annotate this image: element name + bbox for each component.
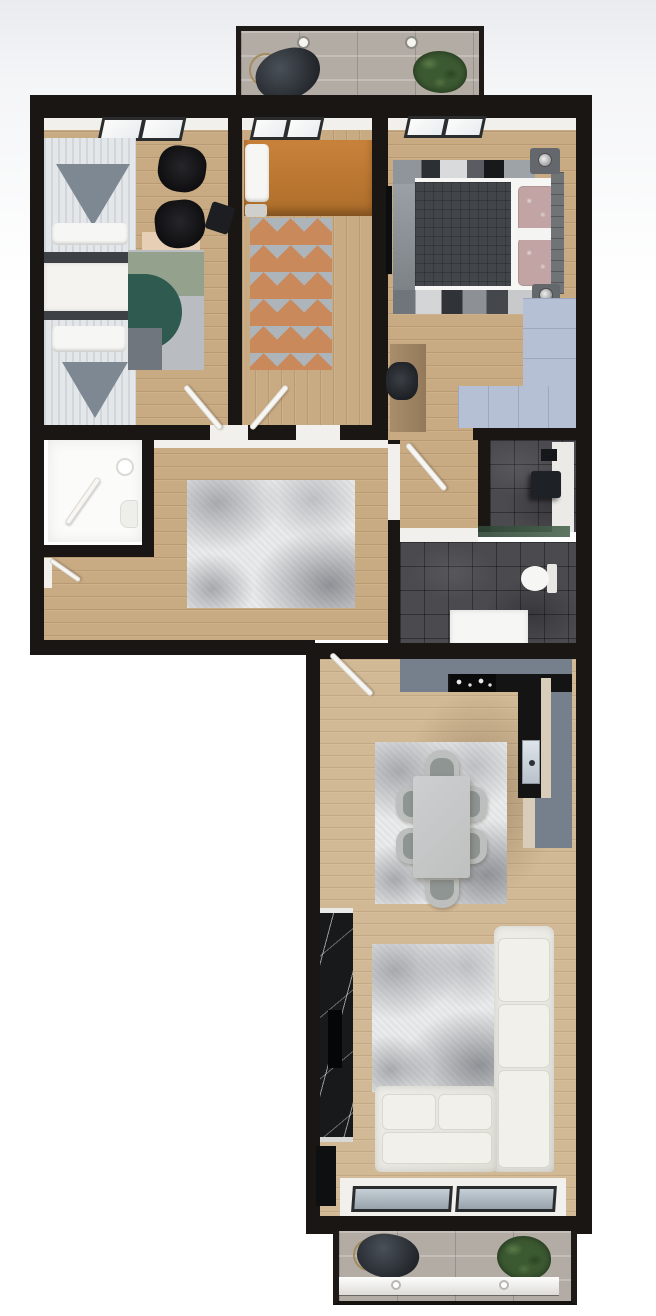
- cabinet-face: [541, 678, 551, 798]
- pillow: [518, 186, 554, 234]
- floor-plan: [0, 0, 656, 1316]
- wall-top: [30, 95, 592, 118]
- hanging-chair: [353, 1228, 423, 1284]
- plant: [413, 51, 467, 93]
- cooktop: [450, 674, 496, 692]
- dining-chair: [425, 876, 459, 908]
- tv-wall-base: [316, 1146, 336, 1206]
- wall-shower-left: [478, 440, 490, 532]
- area-rug: [128, 250, 204, 370]
- wall-bedroom2-3: [372, 118, 388, 440]
- rail-light: [391, 1280, 401, 1290]
- railing: [339, 1277, 559, 1295]
- ceiling-light-icon: [405, 36, 418, 49]
- wall-bathroom-small-right: [142, 440, 154, 545]
- pillow: [52, 223, 128, 245]
- sofa-cushion: [498, 938, 550, 1002]
- pillow: [245, 144, 269, 202]
- bed-header: [44, 311, 136, 320]
- shower-valve: [541, 449, 557, 461]
- cabinet-face: [523, 798, 535, 848]
- sofa-cushion: [438, 1094, 492, 1130]
- pillow: [52, 326, 126, 352]
- panorama-window: [455, 1186, 557, 1212]
- vanity: [450, 610, 528, 646]
- patchwork-rug: [393, 290, 535, 314]
- dining-table: [413, 776, 470, 878]
- wall-right: [576, 95, 592, 1233]
- kitchen-sink: [522, 740, 540, 784]
- wall-hall-bottom: [30, 640, 315, 655]
- rug-gray-block: [128, 328, 162, 370]
- kitchen-peninsula: [535, 798, 572, 848]
- geometric-rug: [250, 218, 332, 370]
- sofa-cushion: [498, 1004, 550, 1068]
- balcony-bottom: [333, 1231, 577, 1305]
- window: [250, 117, 325, 140]
- rail-light: [499, 1280, 509, 1290]
- shower-head: [531, 471, 561, 498]
- toilet: [521, 566, 549, 591]
- hallway-wall-face: [154, 440, 388, 448]
- wall-bedroom1-2: [228, 118, 242, 440]
- wall-master-bathroom: [473, 428, 576, 440]
- cushion: [245, 204, 267, 217]
- window: [404, 116, 487, 138]
- sofa-cushion: [382, 1132, 492, 1164]
- wall-left: [30, 95, 44, 655]
- panorama-window: [351, 1186, 453, 1212]
- wall-tv: [386, 186, 392, 274]
- door-opening: [296, 425, 340, 440]
- wall-living-left: [306, 643, 320, 1233]
- low-wall: [400, 528, 478, 542]
- wall-kitchen-top: [306, 643, 592, 659]
- pillow: [518, 238, 554, 286]
- hallway-rug: [187, 480, 355, 608]
- tv: [328, 1010, 342, 1068]
- glass-shelf: [478, 526, 570, 537]
- pillow-runner: [516, 228, 554, 240]
- door-opening: [388, 444, 400, 520]
- plant: [497, 1236, 551, 1280]
- headboard: [551, 172, 564, 294]
- wardrobe: [523, 298, 576, 392]
- living-rug: [372, 944, 498, 1092]
- desk-chair: [386, 362, 418, 400]
- sink: [116, 458, 134, 476]
- wall-bathroom-small-bottom: [44, 545, 154, 557]
- toilet: [120, 500, 138, 528]
- table-lamp: [538, 153, 552, 167]
- wardrobe: [458, 386, 576, 428]
- duvet: [415, 182, 511, 286]
- sofa-cushion: [498, 1070, 550, 1168]
- dresser: [44, 263, 136, 311]
- sofa-cushion: [382, 1094, 436, 1130]
- bed-footer: [44, 252, 136, 263]
